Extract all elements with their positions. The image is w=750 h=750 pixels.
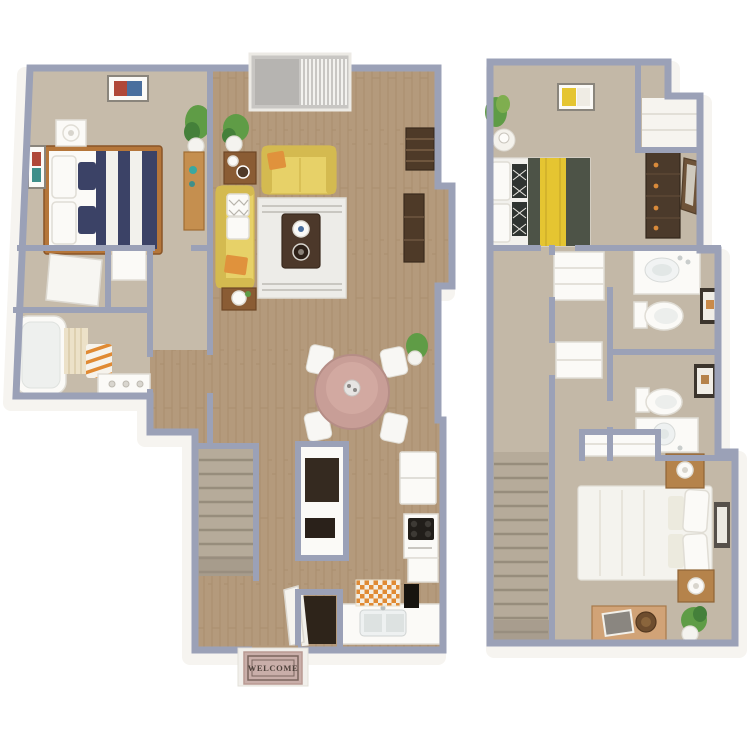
- stove: [404, 514, 438, 558]
- bath-vanity: [98, 374, 150, 394]
- linen-closet-b: [556, 342, 602, 378]
- bedroom1-wall-art-left: [28, 146, 45, 188]
- bedroom2-wall-art: [558, 84, 594, 110]
- bathroom2-toilet: [636, 388, 682, 415]
- media-console: [404, 194, 424, 262]
- dishwasher: [404, 584, 419, 608]
- bedroom1-bed: [44, 146, 162, 254]
- stairs-down: [197, 448, 255, 576]
- shower-curtain: [64, 328, 88, 374]
- floor-plan-svg: WELCOME: [0, 0, 750, 750]
- bedroom3-wall-art: [714, 502, 730, 548]
- bedroom2-bed: [490, 158, 590, 246]
- bedroom2-closet-shelves: [642, 98, 698, 148]
- loveseat: [262, 146, 336, 194]
- bathtub: [16, 316, 66, 394]
- welcome-mat: WELCOME: [238, 648, 308, 686]
- kitchen-counter-right: [408, 558, 438, 582]
- bathroom1-toilet: [634, 302, 683, 330]
- closet-bifold-door: [46, 254, 102, 306]
- bedroom1-wall-art-top: [108, 76, 148, 101]
- bedroom3-nightstand-bottom: [678, 570, 714, 602]
- second-floor: [485, 62, 739, 650]
- first-floor: [11, 54, 452, 657]
- stairs-up: [492, 452, 550, 642]
- kitchen-sink-counter: [340, 604, 440, 644]
- bedroom2-dresser: [646, 152, 680, 238]
- sliding-patio-door: [250, 54, 350, 110]
- bedroom3-bed: [578, 486, 712, 580]
- bedroom3-closet-shelves: [584, 434, 656, 456]
- refrigerator: [400, 452, 436, 504]
- bedroom1-desk: [184, 152, 204, 230]
- coffee-table: [282, 214, 320, 268]
- floor-plan-render: WELCOME: [0, 0, 750, 750]
- side-table-bottom: [222, 288, 256, 310]
- bedroom2-nightstand: [493, 129, 515, 151]
- bathroom1-vanity: [634, 250, 700, 294]
- bedroom3-desk: [592, 606, 666, 642]
- side-table-top: [224, 152, 256, 184]
- closet-shelf-unit: [112, 250, 146, 280]
- linen-closet-a: [554, 252, 604, 300]
- pantry-laundry-closet: [301, 447, 343, 555]
- bedroom1-nightstand: [56, 120, 86, 146]
- bathroom2-wall-art: [694, 364, 716, 398]
- bookshelf: [406, 128, 434, 170]
- welcome-mat-text: WELCOME: [248, 663, 298, 673]
- kitchen-mosaic-rug: [356, 580, 400, 606]
- hall-wood-floor: [150, 350, 212, 432]
- sofa: [216, 186, 254, 288]
